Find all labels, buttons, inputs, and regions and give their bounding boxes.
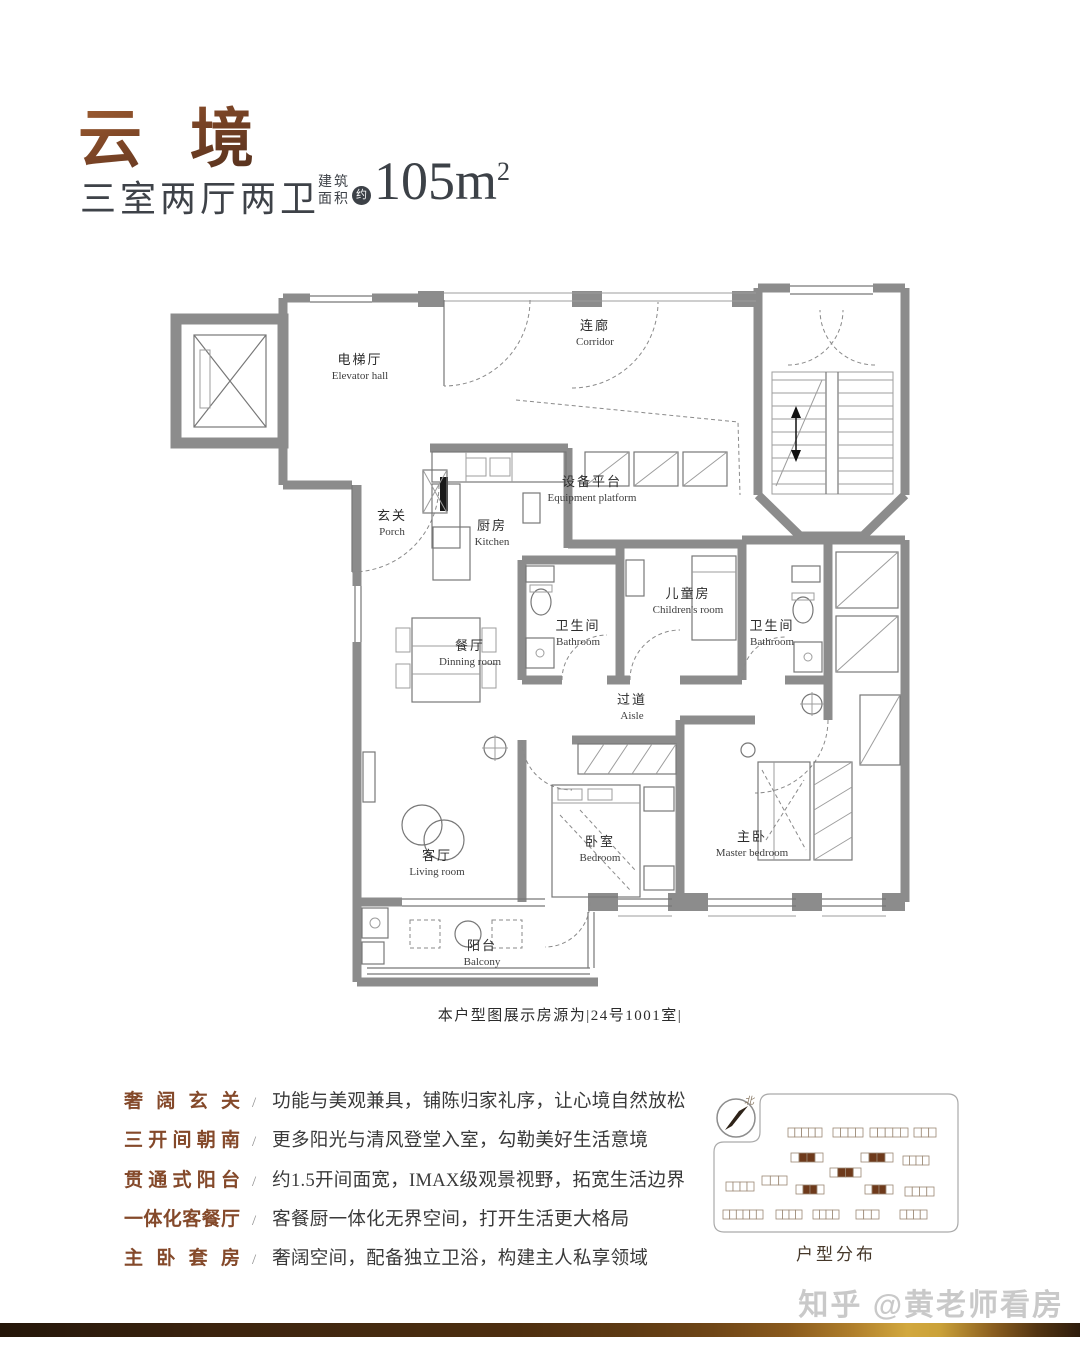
- room-label-living-room: 客厅 Living room: [377, 848, 497, 879]
- building-segment-highlighted: [879, 1185, 886, 1194]
- feature-desc: 约1.5开间面宽，IMAX级观景视野，拓宽生活边界: [272, 1166, 685, 1192]
- building-segment: [815, 1153, 823, 1162]
- building-segment: [762, 1176, 770, 1185]
- building-segment: [914, 1128, 921, 1137]
- feature-label: 一体化客餐厅: [124, 1204, 240, 1231]
- building-segment: [795, 1128, 802, 1137]
- building-segment: [893, 1128, 901, 1137]
- area-approx-badge: 约: [352, 186, 371, 205]
- area-label: 建筑 面积: [318, 174, 350, 208]
- building-segment: [743, 1210, 750, 1219]
- room-label-porch: 玄关 Porch: [352, 508, 432, 539]
- building-segment: [820, 1210, 827, 1219]
- building-segment: [920, 1187, 927, 1196]
- room-label-dining-room: 餐厅 Dinning room: [410, 638, 530, 669]
- building-segment-highlighted: [869, 1153, 877, 1162]
- room-label-master-bedroom: 主卧 Master bedroom: [682, 829, 822, 860]
- room-label-bedroom: 卧室 Bedroom: [550, 834, 650, 865]
- building-segment: [910, 1156, 917, 1165]
- building-segment-highlighted: [810, 1185, 817, 1194]
- building-segment: [861, 1153, 869, 1162]
- building-segment: [853, 1168, 861, 1177]
- building-segment: [826, 1210, 833, 1219]
- building-segment: [776, 1210, 783, 1219]
- area-value: 105m2: [374, 150, 510, 212]
- building-segment: [885, 1153, 893, 1162]
- building-segment: [791, 1153, 799, 1162]
- room-label-corridor: 连廊 Corridor: [535, 318, 655, 349]
- building-segment: [802, 1128, 809, 1137]
- building-segment: [817, 1185, 824, 1194]
- building-segment: [923, 1156, 930, 1165]
- building-segment: [871, 1210, 879, 1219]
- elevator-shaft: [194, 335, 266, 427]
- plan-caption: 本户型图展示房源为|24号1001室|: [360, 1004, 760, 1025]
- area-exponent: 2: [497, 157, 510, 186]
- building-segment: [907, 1210, 914, 1219]
- building-segment: [813, 1210, 820, 1219]
- feature-separator: /: [252, 1134, 256, 1151]
- building-segment: [736, 1210, 743, 1219]
- building-segment: [730, 1210, 737, 1219]
- building-segment: [723, 1210, 730, 1219]
- building-segment: [841, 1128, 849, 1137]
- building-segment-highlighted: [872, 1185, 879, 1194]
- feature-row: 一体化客餐厅 / 客餐厨一体化无界空间，打开生活更大格局: [124, 1204, 629, 1231]
- building-segment: [783, 1210, 790, 1219]
- building-segment-highlighted: [803, 1185, 810, 1194]
- building-segment: [789, 1210, 796, 1219]
- page-title: 云 境: [78, 88, 270, 180]
- feature-row: 奢阔玄关 / 功能与美观兼具，铺陈归家礼序，让心境自然放松: [124, 1086, 686, 1113]
- building-segment: [833, 1210, 840, 1219]
- flyer-page: 云 境 三室两厅两卫 建筑 面积 约 105m2: [0, 0, 1080, 1345]
- building-segment: [856, 1210, 864, 1219]
- building-segment-highlighted: [838, 1168, 846, 1177]
- building-segment: [815, 1128, 822, 1137]
- building-segment: [886, 1185, 893, 1194]
- building-segment: [921, 1128, 928, 1137]
- building-segment: [808, 1128, 815, 1137]
- feature-row: 三开间朝南 / 更多阳光与清风登堂入室，勾勒美好生活意境: [124, 1125, 648, 1152]
- feature-row: 贯通式阳台 / 约1.5开间面宽，IMAX级观景视野，拓宽生活边界: [124, 1165, 685, 1192]
- building-segment: [796, 1210, 803, 1219]
- room-label-bathroom-2: 卫生间 Bathroom: [722, 618, 822, 649]
- room-label-children-room: 儿童房 Children's room: [618, 586, 758, 617]
- building-segment: [747, 1182, 754, 1191]
- building-segment-highlighted: [799, 1153, 807, 1162]
- siteplan-label: 户型分布: [756, 1240, 916, 1265]
- feature-separator: /: [252, 1095, 256, 1112]
- room-label-kitchen: 厨房 Kitchen: [452, 518, 532, 549]
- feature-separator: /: [252, 1252, 256, 1269]
- building-segment: [870, 1128, 878, 1137]
- compass-needle: [725, 1106, 748, 1130]
- building-segment: [916, 1156, 923, 1165]
- feature-separator: /: [252, 1213, 256, 1230]
- building-segment: [833, 1128, 841, 1137]
- floor-plan-drawing: [160, 280, 910, 1020]
- building-segment: [903, 1156, 910, 1165]
- building-segment: [750, 1210, 757, 1219]
- layout-subtitle: 三室两厅两卫: [80, 170, 320, 222]
- feature-desc: 客餐厨一体化无界空间，打开生活更大格局: [272, 1205, 629, 1231]
- building-segment: [905, 1187, 912, 1196]
- building-segment: [864, 1210, 872, 1219]
- bottom-gradient-bar: [0, 1323, 1080, 1337]
- building-segment-highlighted: [877, 1153, 885, 1162]
- site-plan-drawing: [706, 1086, 966, 1246]
- building-segment: [900, 1128, 908, 1137]
- building-segment: [830, 1168, 838, 1177]
- stairs: [772, 372, 893, 494]
- feature-label: 三开间朝南: [124, 1125, 240, 1152]
- building-segment: [788, 1128, 795, 1137]
- room-label-bathroom-1: 卫生间 Bathroom: [528, 618, 628, 649]
- feature-desc: 更多阳光与清风登堂入室，勾勒美好生活意境: [272, 1126, 648, 1152]
- feature-label: 贯通式阳台: [124, 1165, 240, 1192]
- building-segment: [929, 1128, 936, 1137]
- building-segment: [865, 1185, 872, 1194]
- feature-desc: 奢阔空间，配备独立卫浴，构建主人私享领域: [272, 1244, 648, 1270]
- building-segment: [740, 1182, 747, 1191]
- building-segment-highlighted: [846, 1168, 854, 1177]
- feature-separator: /: [252, 1174, 256, 1191]
- compass-north-label: 北: [744, 1092, 754, 1107]
- room-label-elevator-hall: 电梯厅 Elevator hall: [290, 352, 430, 383]
- building-segment: [848, 1128, 856, 1137]
- building-segment: [900, 1210, 907, 1219]
- building-segment: [770, 1176, 778, 1185]
- area-label-bottom: 面积: [318, 192, 350, 207]
- building-segment: [856, 1128, 864, 1137]
- building-segment: [920, 1210, 927, 1219]
- room-label-equipment-platform: 设备平台 Equipment platform: [517, 474, 667, 505]
- building-segment: [912, 1187, 919, 1196]
- building-segment: [927, 1187, 934, 1196]
- building-segment: [885, 1128, 893, 1137]
- watermark: 知乎 @黄老师看房: [798, 1280, 1064, 1324]
- area-label-top: 建筑: [318, 175, 350, 190]
- room-label-aisle: 过道 Aisle: [592, 692, 672, 723]
- feature-label: 主卧套房: [124, 1243, 240, 1270]
- building-segment: [726, 1182, 733, 1191]
- building-segment: [914, 1210, 921, 1219]
- building-segment: [733, 1182, 740, 1191]
- building-segment: [796, 1185, 803, 1194]
- feature-row: 主卧套房 / 奢阔空间，配备独立卫浴，构建主人私享领域: [124, 1243, 648, 1270]
- building-segment-highlighted: [807, 1153, 815, 1162]
- building-segment: [779, 1176, 787, 1185]
- feature-desc: 功能与美观兼具，铺陈归家礼序，让心境自然放松: [272, 1087, 686, 1113]
- building-segment: [756, 1210, 763, 1219]
- building-segment: [878, 1128, 886, 1137]
- room-label-balcony: 阳台 Balcony: [432, 938, 532, 969]
- feature-label: 奢阔玄关: [124, 1086, 240, 1113]
